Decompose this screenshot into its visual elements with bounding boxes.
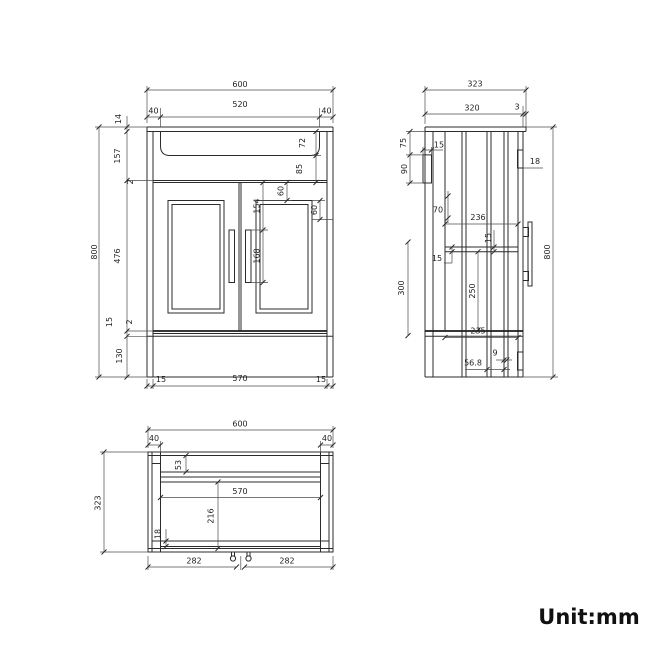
dim-plan-inner-depth: 216 [207, 508, 216, 523]
dim-front-handle-top-offset: 154 [253, 198, 262, 213]
dim-front-basin-depth: 72 [298, 138, 307, 148]
dim-front-top-section: 157 [113, 148, 122, 163]
side-view: 323 320 3 75 15 90 18 70 236 15 15 300 2… [397, 80, 558, 380]
dim-front-basin-width: 520 [232, 100, 247, 109]
dim-plan-overall-depth: 323 [94, 495, 103, 510]
dim-front-basin-to-door: 85 [295, 164, 304, 174]
plan-handle-screw-right [246, 556, 251, 561]
technical-drawing-page: 600 40 520 40 72 85 60 154 168 60 14 157… [0, 0, 650, 650]
front-dim-ticks [97, 88, 336, 389]
dim-side-shelf-depth: 236 [470, 213, 485, 222]
dim-front-handle-length: 168 [253, 248, 262, 263]
vanity-cabinet-drawing: 600 40 520 40 72 85 60 154 168 60 14 157… [0, 0, 650, 650]
front-view: 600 40 520 40 72 85 60 154 168 60 14 157… [90, 80, 336, 389]
dim-plan-back-rail: 53 [174, 460, 183, 470]
dim-front-gap-top: 2 [126, 179, 135, 184]
dim-front-overall-height: 800 [90, 244, 99, 259]
plan-view: 600 40 40 53 570 216 18 282 282 323 [94, 420, 336, 571]
dim-plan-handle-right-span: 282 [279, 557, 294, 566]
dim-front-gap-bottom: 2 [125, 319, 134, 324]
dim-side-front-overhang: 3 [514, 103, 519, 112]
dim-front-bottom-inset-left: 15 [156, 375, 166, 384]
dim-side-bottom-depth: 235 [470, 327, 485, 336]
dim-front-basin-offset-right: 40 [321, 107, 331, 116]
dim-side-rail-thickness-a: 15 [484, 233, 493, 243]
unit-label: Unit:mm [538, 605, 639, 629]
plan-handle-screw-left [230, 556, 235, 561]
dim-side-overall-height: 800 [543, 244, 552, 259]
dim-front-basin-offset-left: 40 [148, 107, 158, 116]
dim-plan-handle-left-span: 282 [186, 557, 201, 566]
dim-front-panel-top-inset: 60 [277, 186, 286, 196]
dim-side-rail-thickness-b: 15 [432, 254, 442, 263]
dim-side-body-depth: 320 [464, 104, 479, 113]
dim-side-leg-step: 9 [492, 349, 497, 358]
front-structure [147, 127, 333, 377]
dim-front-plinth-height: 130 [115, 348, 124, 363]
dim-side-rail-offset: 70 [433, 206, 443, 215]
dim-front-bottom-rail: 15 [105, 317, 114, 327]
dim-side-lower-section: 300 [397, 280, 406, 295]
dim-front-counter-thickness: 14 [114, 114, 123, 124]
dim-front-overall-width: 600 [232, 80, 247, 89]
dim-side-overall-depth: 323 [467, 80, 482, 89]
dim-plan-panel-right: 40 [322, 434, 332, 443]
dim-side-door-inner: 250 [468, 283, 477, 298]
dim-side-bracket-inset: 15 [434, 141, 444, 150]
dim-plan-inner-width: 570 [232, 487, 247, 496]
dim-side-bracket-offset: 75 [399, 138, 408, 148]
dim-plan-front-rail: 18 [154, 529, 163, 539]
dim-front-door-height: 476 [113, 248, 122, 263]
dim-plan-overall-width: 600 [232, 420, 247, 429]
dim-side-bracket-height: 90 [400, 164, 409, 174]
dim-front-panel-side-inset: 60 [310, 205, 319, 215]
dim-side-leg-offset: 56.8 [464, 359, 482, 368]
dim-front-bottom-inset-right: 15 [316, 375, 326, 384]
dim-front-bottom-inner-width: 570 [232, 374, 247, 383]
dim-side-hinge-height: 18 [530, 157, 540, 166]
dim-plan-panel-left: 40 [149, 434, 159, 443]
